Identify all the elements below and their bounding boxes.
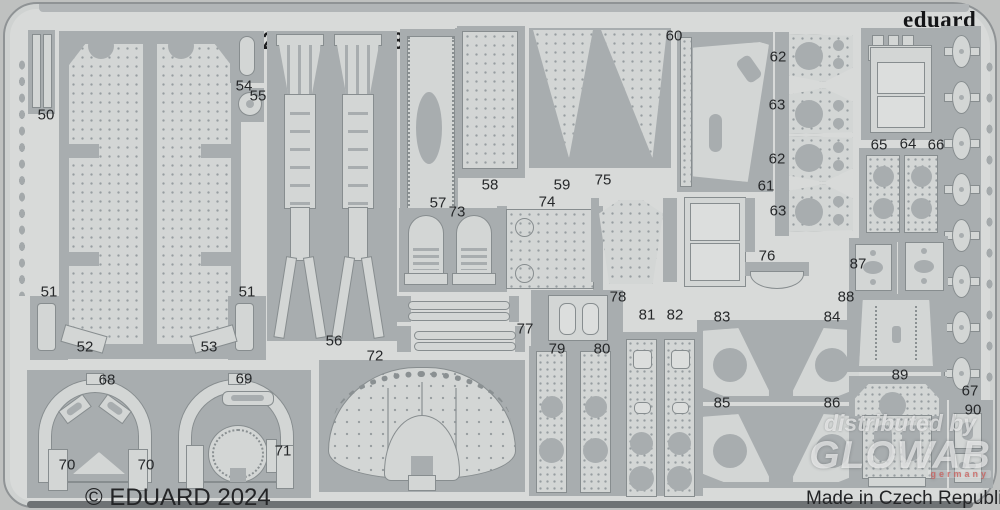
part-label-70: 70 <box>59 457 76 474</box>
part-label-77: 77 <box>517 321 534 338</box>
part-label-81: 81 <box>639 307 656 324</box>
part-label-86: 86 <box>824 395 841 412</box>
part-label-72: 72 <box>367 348 384 365</box>
part-label-50: 50 <box>38 107 55 124</box>
part-label-64: 64 <box>900 136 917 153</box>
part-label-57: 57 <box>430 195 447 212</box>
part-label-69: 69 <box>236 371 253 388</box>
part-label-75: 75 <box>595 172 612 189</box>
part-label-62: 62 <box>769 151 786 168</box>
part-label-80: 80 <box>594 341 611 358</box>
part-label-89: 89 <box>892 367 909 384</box>
part-label-74: 74 <box>539 194 556 211</box>
part-label-55: 55 <box>250 88 267 105</box>
part-label-60: 60 <box>666 28 683 45</box>
part-label-66: 66 <box>928 137 945 154</box>
photo-etch-fret-sheet: 49 1441 Buccaneer S.2B Gulf War 1/48 edu… <box>3 2 997 508</box>
part-label-78: 78 <box>610 289 627 306</box>
part-label-70: 70 <box>138 457 155 474</box>
part-label-76: 76 <box>759 248 776 265</box>
part-label-84: 84 <box>824 309 841 326</box>
part-label-71: 71 <box>275 443 292 460</box>
part-label-83: 83 <box>714 309 731 326</box>
part-label-73: 73 <box>449 204 466 221</box>
part-label-87: 87 <box>850 256 867 273</box>
part-label-65: 65 <box>871 137 888 154</box>
part-label-82: 82 <box>667 307 684 324</box>
part-label-63: 63 <box>770 203 787 220</box>
part-label-58: 58 <box>482 177 499 194</box>
part-label-59: 59 <box>554 177 571 194</box>
part-label-63: 63 <box>769 97 786 114</box>
part-labels: 5054555151525356725773587459756061626362… <box>5 4 995 506</box>
part-label-62: 62 <box>770 49 787 66</box>
part-label-56: 56 <box>326 333 343 350</box>
product-photo: 49 1441 Buccaneer S.2B Gulf War 1/48 edu… <box>0 0 1000 510</box>
part-label-79: 79 <box>549 341 566 358</box>
part-label-67: 67 <box>962 383 979 400</box>
part-label-61: 61 <box>758 178 775 195</box>
part-label-52: 52 <box>77 339 94 356</box>
part-label-53: 53 <box>201 339 218 356</box>
part-label-51: 51 <box>41 284 58 301</box>
part-label-85: 85 <box>714 395 731 412</box>
part-label-88: 88 <box>838 289 855 306</box>
part-label-51: 51 <box>239 284 256 301</box>
part-label-68: 68 <box>99 372 116 389</box>
part-label-90: 90 <box>965 402 982 419</box>
